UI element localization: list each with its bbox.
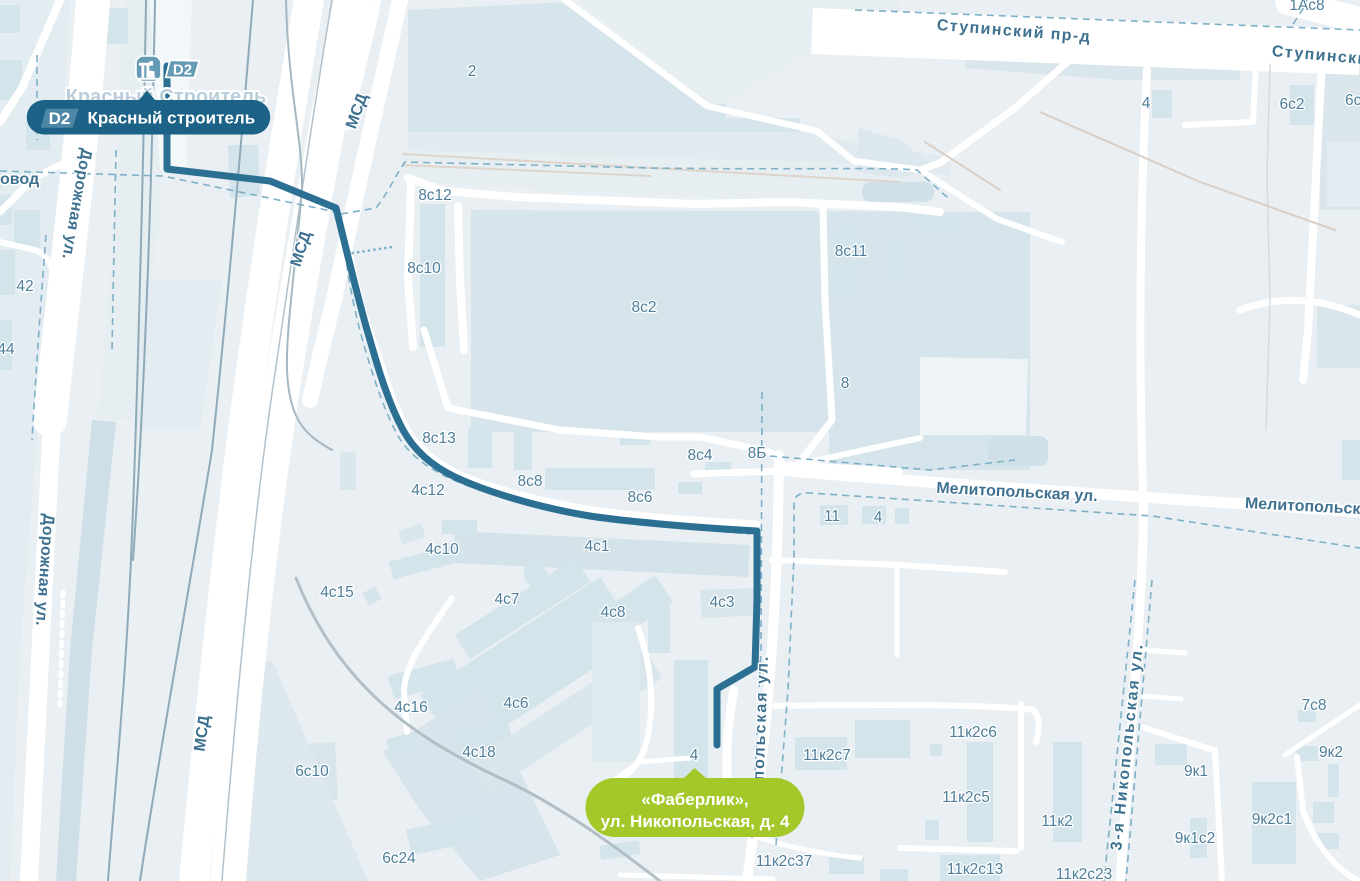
svg-text:8Б: 8Б bbox=[748, 445, 767, 462]
svg-text:6с: 6с bbox=[1345, 92, 1360, 109]
svg-text:4: 4 bbox=[874, 509, 883, 526]
svg-text:D2: D2 bbox=[49, 109, 71, 128]
svg-text:44: 44 bbox=[0, 341, 15, 358]
svg-text:8с13: 8с13 bbox=[422, 430, 456, 447]
svg-text:4с6: 4с6 bbox=[504, 695, 529, 712]
svg-text:9к2с1: 9к2с1 bbox=[1252, 811, 1292, 828]
svg-text:4с7: 4с7 bbox=[495, 591, 520, 608]
svg-text:42: 42 bbox=[16, 278, 33, 295]
svg-text:8: 8 bbox=[841, 375, 850, 392]
svg-text:11: 11 bbox=[824, 508, 840, 525]
svg-text:7с8: 7с8 bbox=[1302, 697, 1327, 714]
svg-text:8с4: 8с4 bbox=[688, 447, 713, 464]
svg-text:2: 2 bbox=[468, 63, 477, 80]
svg-text:6с24: 6с24 bbox=[382, 850, 416, 867]
svg-text:11к2с37: 11к2с37 bbox=[756, 853, 812, 870]
svg-text:ул. Никопольская, д. 4: ул. Никопольская, д. 4 bbox=[601, 812, 790, 831]
svg-text:4с15: 4с15 bbox=[320, 584, 354, 601]
svg-text:6с10: 6с10 bbox=[295, 763, 329, 780]
svg-text:«Фаберлик»,: «Фаберлик», bbox=[641, 790, 748, 809]
svg-text:8с11: 8с11 bbox=[835, 243, 867, 260]
svg-text:8с2: 8с2 bbox=[632, 299, 657, 316]
svg-text:4с18: 4с18 bbox=[462, 744, 496, 761]
svg-text:11к2с13: 11к2с13 bbox=[947, 861, 1003, 878]
svg-text:овод: овод bbox=[0, 171, 39, 188]
svg-text:Красный строитель: Красный строитель bbox=[88, 109, 256, 128]
svg-text:6с2: 6с2 bbox=[1280, 96, 1305, 113]
svg-text:8с10: 8с10 bbox=[407, 260, 441, 277]
svg-text:11к2с7: 11к2с7 bbox=[803, 747, 851, 764]
svg-text:4с12: 4с12 bbox=[411, 482, 445, 499]
svg-text:11к2: 11к2 bbox=[1041, 813, 1073, 830]
svg-text:D2: D2 bbox=[173, 62, 192, 79]
svg-text:4с10: 4с10 bbox=[425, 541, 459, 558]
svg-text:11к2с5: 11к2с5 bbox=[942, 789, 990, 806]
svg-text:9к1: 9к1 bbox=[1184, 763, 1208, 780]
svg-text:8с6: 8с6 bbox=[628, 489, 653, 506]
svg-text:1Ас8: 1Ас8 bbox=[1289, 0, 1324, 14]
svg-text:4: 4 bbox=[1142, 95, 1151, 112]
svg-text:4с8: 4с8 bbox=[601, 604, 626, 621]
svg-text:9к1с2: 9к1с2 bbox=[1175, 830, 1215, 847]
svg-text:4с1: 4с1 bbox=[585, 538, 610, 555]
svg-text:9к2: 9к2 bbox=[1319, 744, 1343, 761]
svg-text:8с12: 8с12 bbox=[418, 187, 452, 204]
svg-text:11к2с6: 11к2с6 bbox=[949, 724, 997, 741]
svg-text:4с3: 4с3 bbox=[710, 594, 735, 611]
svg-text:8с8: 8с8 bbox=[518, 473, 543, 490]
svg-text:11к2с23: 11к2с23 bbox=[1056, 866, 1112, 881]
svg-text:4: 4 bbox=[690, 747, 699, 764]
svg-text:4с16: 4с16 bbox=[394, 699, 428, 716]
